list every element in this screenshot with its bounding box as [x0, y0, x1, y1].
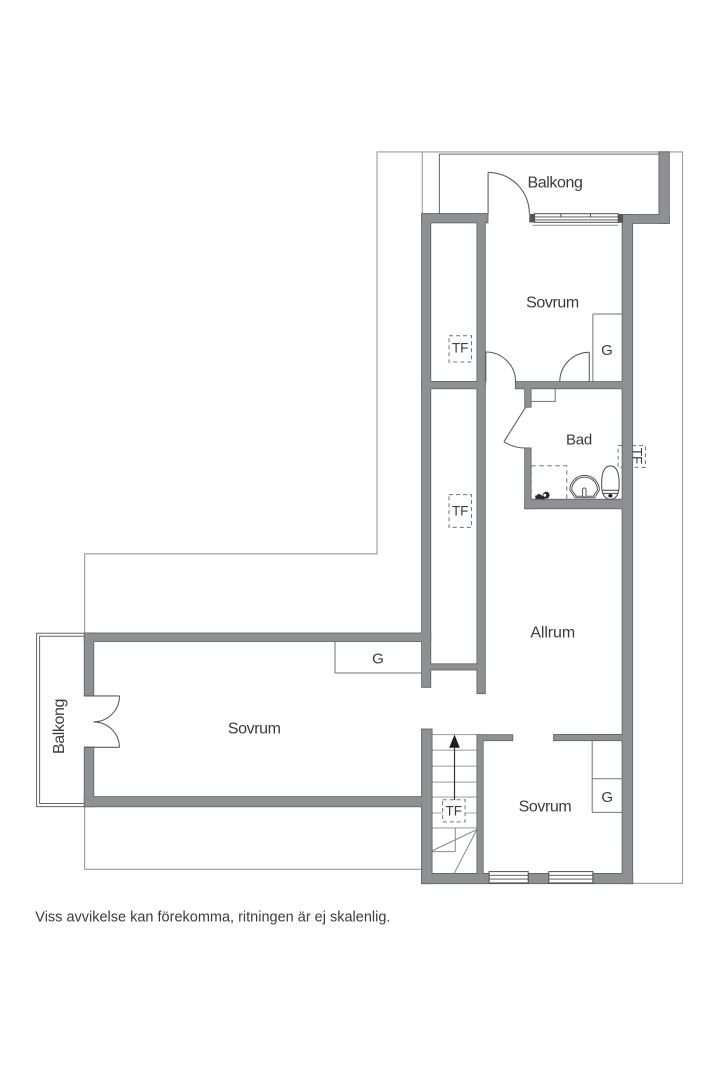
svg-text:Balkong: Balkong: [527, 175, 582, 192]
svg-text:Sovrum: Sovrum: [526, 295, 579, 312]
svg-text:Sovrum: Sovrum: [519, 799, 572, 816]
svg-text:TF: TF: [446, 804, 463, 819]
svg-text:TF: TF: [452, 340, 469, 355]
svg-text:Balkong: Balkong: [51, 699, 68, 754]
svg-text:G: G: [601, 342, 613, 359]
svg-text:G: G: [601, 789, 613, 806]
svg-text:TF: TF: [629, 448, 644, 465]
svg-text:G: G: [372, 651, 384, 668]
svg-text:TF: TF: [452, 504, 469, 519]
svg-text:Viss avvikelse kan förekomma,: Viss avvikelse kan förekomma, ritningen …: [35, 909, 390, 925]
svg-text:Allrum: Allrum: [530, 624, 575, 641]
svg-text:Sovrum: Sovrum: [228, 721, 281, 738]
svg-text:Bad: Bad: [566, 431, 592, 448]
